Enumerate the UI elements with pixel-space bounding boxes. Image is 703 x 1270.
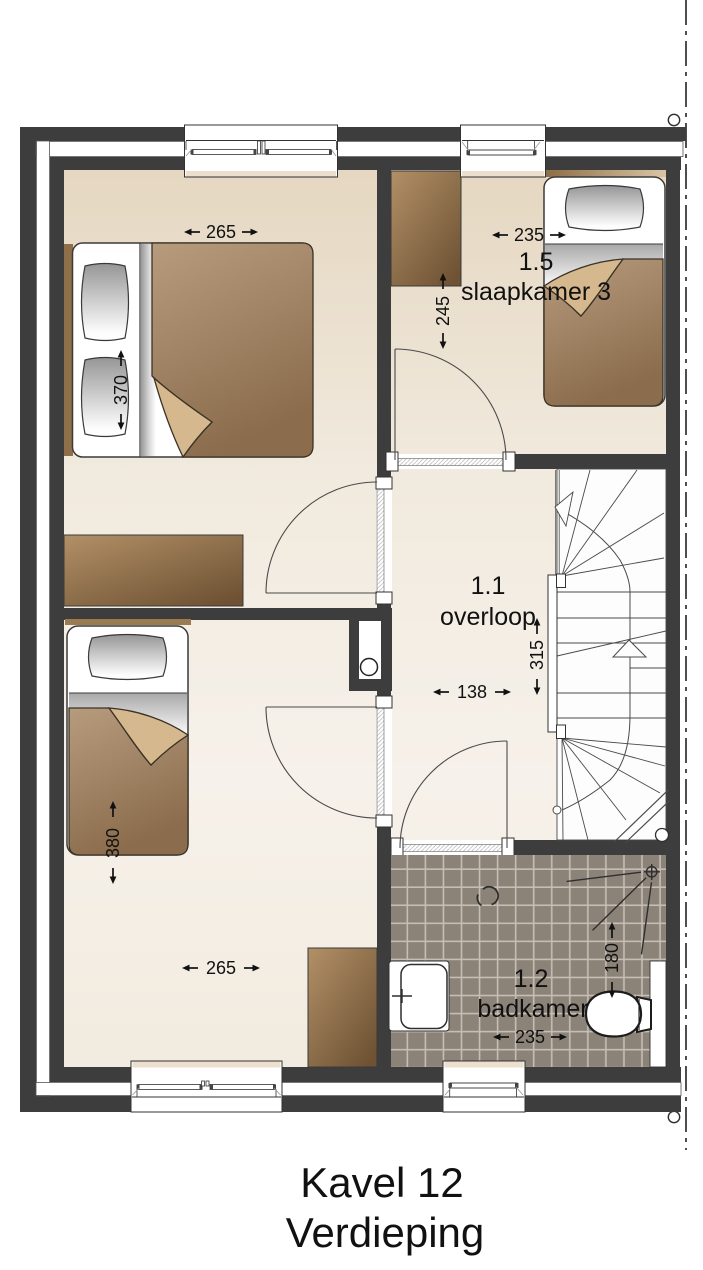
svg-text:245: 245 <box>433 296 453 326</box>
svg-text:138: 138 <box>457 682 487 702</box>
svg-text:overloop: overloop <box>440 603 536 631</box>
svg-text:badkamer: badkamer <box>477 995 588 1023</box>
svg-text:235: 235 <box>515 1027 545 1047</box>
svg-text:370: 370 <box>111 375 131 405</box>
svg-text:380: 380 <box>103 828 123 858</box>
svg-text:180: 180 <box>602 943 622 973</box>
svg-text:1.5: 1.5 <box>519 248 554 276</box>
svg-text:1.1: 1.1 <box>471 572 506 600</box>
svg-text:315: 315 <box>527 640 547 670</box>
svg-text:Kavel 12: Kavel 12 <box>300 1159 463 1206</box>
svg-text:265: 265 <box>206 958 236 978</box>
svg-text:265: 265 <box>206 222 236 242</box>
svg-text:Verdieping: Verdieping <box>286 1209 485 1256</box>
svg-text:235: 235 <box>514 225 544 245</box>
svg-text:slaapkamer 3: slaapkamer 3 <box>461 278 611 306</box>
svg-text:1.2: 1.2 <box>514 965 549 993</box>
